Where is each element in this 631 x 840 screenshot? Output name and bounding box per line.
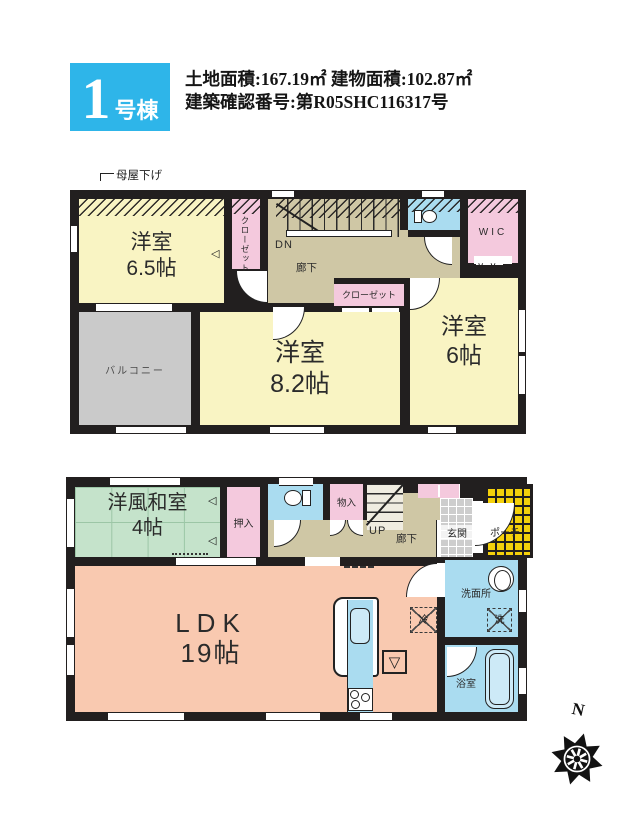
dashed-opening-line: [172, 553, 208, 555]
lowered-roof-hatch: [468, 199, 518, 213]
window: [279, 477, 313, 486]
window: [66, 499, 75, 547]
laundry-label: 洗: [494, 615, 506, 626]
refrigerator-box: 冷: [410, 607, 437, 633]
porch-label: ポーチ: [483, 524, 527, 539]
toilet-tank-icon: [302, 490, 311, 506]
washroom-door-gap: [437, 563, 445, 597]
stairs-up: [367, 484, 403, 530]
room-8-2-size: 8.2帖: [270, 370, 330, 398]
genkan-label: 玄関: [441, 525, 473, 540]
room-6-5-name: 洋室: [131, 231, 173, 254]
window: [272, 190, 294, 198]
ldk-size-label: 19帖: [126, 638, 296, 668]
room-6-label: 洋室 6帖: [414, 312, 514, 370]
balcony-label: バルコニー: [79, 362, 191, 377]
lowered-roof-hatch: [232, 199, 260, 214]
room-6-size: 6帖: [446, 342, 482, 368]
window: [110, 477, 180, 486]
hallway-2f-lower: [268, 278, 334, 303]
stairs-down-label: DN: [275, 239, 293, 251]
toilet-bowl-icon: [284, 490, 302, 506]
window: [108, 712, 184, 721]
wall: [400, 199, 408, 230]
building-permit-number: 建築確認番号:第R05SHC116317号: [185, 89, 448, 114]
floorplan-page: 1 号棟 土地面積:167.19㎡ 建物面積:102.87㎡ 建築確認番号:第R…: [0, 0, 631, 840]
bathtub-icon: [485, 649, 514, 709]
burner-icon: [351, 700, 360, 709]
window: [518, 356, 526, 394]
toilet-bowl-icon: [422, 210, 437, 223]
compass-rose-icon: [544, 724, 610, 790]
window: [518, 668, 527, 694]
stairs-railing: [286, 230, 392, 237]
unit-number-badge: 1 号棟: [70, 63, 170, 131]
wall: [408, 230, 460, 237]
fridge-label: 冷: [418, 615, 430, 626]
room-6-5-label: 洋室 6.5帖: [89, 230, 214, 282]
ldk-name-label: LDK: [126, 608, 296, 638]
laundry-box: 洗: [487, 608, 512, 632]
washitsu-name: 洋風和室: [108, 492, 188, 514]
kitchen-sink-icon: [350, 608, 370, 644]
roof-note-bracket: [100, 173, 114, 181]
window: [96, 303, 172, 312]
hallway-1f-label: 廊下: [396, 531, 417, 546]
stairs-up-label: UP: [369, 525, 386, 537]
window: [66, 645, 75, 675]
cabinet-divider: [438, 485, 440, 497]
wic-label: WIC: [468, 227, 518, 238]
oshiire-label: 押入: [227, 515, 260, 530]
window: [266, 712, 320, 721]
room-8-2-label: 洋室 8.2帖: [225, 338, 375, 400]
window: [70, 226, 78, 252]
lowered-roof-hatch: [276, 199, 400, 218]
sliding-door-triangle-icon: [208, 531, 216, 549]
window: [116, 426, 186, 434]
dashed-opening-line: [344, 566, 374, 568]
window: [518, 310, 526, 352]
burner-icon: [361, 693, 370, 702]
toilet-tank-icon: [414, 210, 422, 223]
room-6-5-door-arc: [236, 271, 267, 303]
roof-note-label: 母屋下げ: [116, 167, 162, 183]
burner-icon: [350, 690, 359, 699]
monoire-label: 物入: [330, 495, 363, 509]
sliding-door-triangle-icon: [208, 491, 216, 509]
entry-step: [436, 520, 440, 557]
window: [422, 190, 444, 198]
compass: N: [538, 700, 622, 796]
room-6-name: 洋室: [441, 313, 487, 339]
closet-horizontal-label: クローゼット: [334, 288, 404, 301]
ldk-opening: [305, 557, 340, 566]
window: [428, 426, 456, 434]
room-8-2-name: 洋室: [275, 339, 325, 367]
folding-door-icon: [476, 256, 503, 265]
lowered-roof-hatch: [79, 199, 224, 216]
unit-suffix: 号棟: [114, 98, 158, 124]
window: [518, 590, 527, 612]
second-floor-plan: 洋室 6.5帖 クローゼット DN 廊下 WIC クローゼット: [70, 190, 526, 434]
wall: [323, 484, 330, 520]
sliding-door-triangle-icon: [211, 244, 219, 262]
first-floor-plan: 洋風和室 4帖 押入 廊下 物入 UP 玄関: [66, 477, 527, 721]
bathroom-label: 浴室: [445, 675, 487, 690]
triangle-marker-icon: [382, 650, 407, 674]
washitsu-size: 4帖: [132, 517, 163, 539]
window: [360, 712, 392, 721]
closet-vertical-label: クローゼット: [239, 216, 251, 273]
window: [270, 426, 324, 434]
room-6-5-size: 6.5帖: [126, 257, 176, 280]
window: [176, 557, 256, 566]
unit-number: 1: [81, 74, 110, 124]
washbasin-inner-icon: [494, 570, 511, 591]
compass-north-label: N: [570, 699, 586, 721]
land-building-area: 土地面積:167.19㎡ 建物面積:102.87㎡: [185, 66, 472, 91]
window: [66, 589, 75, 637]
japanese-western-room-label: 洋風和室 4帖: [75, 491, 220, 541]
hallway-2f-label: 廊下: [296, 260, 317, 275]
